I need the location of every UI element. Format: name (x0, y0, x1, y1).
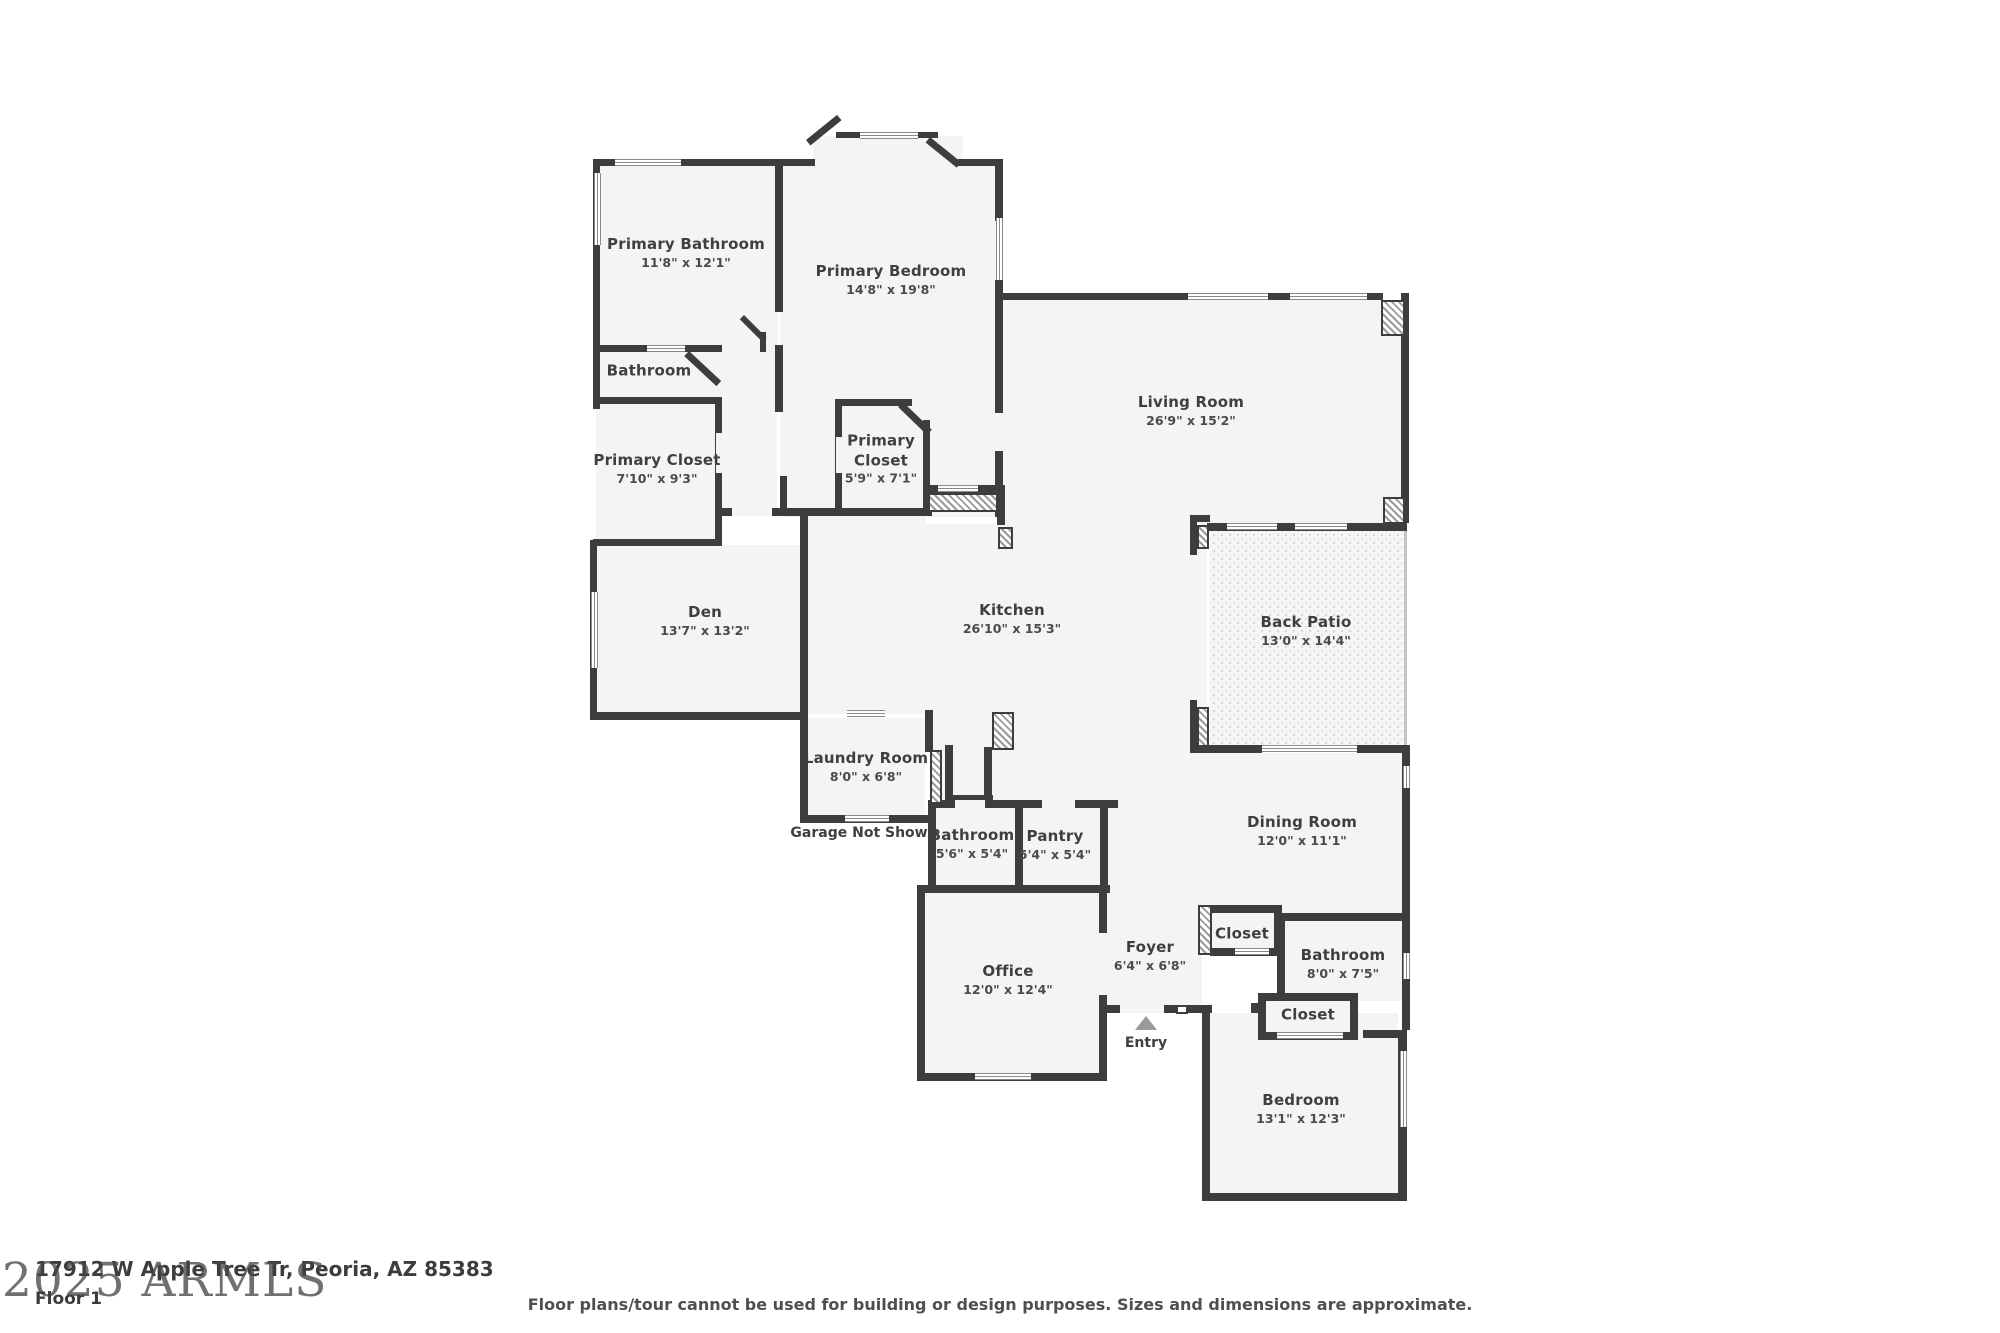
wall-segment (917, 885, 1110, 893)
door-opening (1042, 800, 1075, 808)
door-opening (1099, 933, 1107, 995)
wall-segment (593, 397, 722, 404)
wall-segment (997, 485, 1005, 525)
wall-segment (1363, 1030, 1407, 1038)
window (996, 218, 1003, 280)
wall-segment (780, 476, 787, 512)
room-label-foyer: Foyer 6'4" x 6'8" (1114, 938, 1186, 974)
room-floor (806, 516, 926, 714)
wall-segment (1190, 515, 1210, 522)
window (938, 485, 978, 492)
room-label-back-patio: Back Patio 13'0" x 14'4" (1261, 613, 1352, 649)
room-name: Living Room (1138, 393, 1244, 413)
room-name: Closet (1281, 1005, 1335, 1025)
window (647, 345, 685, 352)
wall-segment (1258, 993, 1358, 1001)
hatched-pillar (1198, 905, 1212, 955)
room-label-primary-bathroom: Primary Bathroom 11'8" x 12'1" (607, 235, 765, 271)
wall-segment (984, 747, 992, 803)
wall-segment (775, 345, 783, 412)
door-opening (955, 800, 985, 808)
wall-segment (1367, 293, 1383, 300)
room-label-primary-closet-left: Primary Closet 7'10" x 9'3" (593, 451, 720, 487)
room-label-closet-lower: Closet (1281, 1005, 1335, 1025)
window (1403, 766, 1410, 788)
room-name: Bathroom (607, 361, 692, 381)
window (1227, 523, 1277, 530)
window (1235, 948, 1269, 955)
wall-segment (1100, 800, 1108, 892)
door-opening (732, 508, 772, 516)
room-name: Back Patio (1261, 613, 1352, 633)
room-label-primary-bedroom: Primary Bedroom 14'8" x 19'8" (816, 262, 967, 298)
wall-segment (775, 159, 783, 312)
wall-segment (1202, 1193, 1407, 1201)
room-name: Office (963, 962, 1053, 982)
patio-screen-wall (1404, 531, 1407, 746)
wall-segment (917, 885, 925, 1081)
floor-label: Floor 1 (35, 1289, 102, 1309)
floor-plan-canvas: Primary Bathroom 11'8" x 12'1" Primary B… (0, 0, 2000, 1333)
room-label-primary-closet-right: Primary Closet 5'9" x 7'1" (837, 431, 925, 486)
entry-arrow-icon (1135, 1016, 1157, 1030)
room-name: Closet (1215, 924, 1269, 944)
room-label-pantry: Pantry 5'4" x 5'4" (1019, 827, 1091, 863)
window (1290, 293, 1367, 300)
room-dims: 11'8" x 12'1" (607, 255, 765, 271)
wall-segment (1210, 905, 1282, 913)
window (845, 815, 889, 822)
hatched-pillar (1381, 300, 1405, 336)
room-label-living-room: Living Room 26'9" x 15'2" (1138, 393, 1244, 429)
room-label-laundry-room: Laundry Room 8'0" x 6'8" (804, 749, 928, 785)
window (591, 592, 598, 668)
window (594, 173, 601, 245)
room-dims: 12'0" x 12'4" (963, 982, 1053, 998)
wall-segment (1277, 913, 1285, 1001)
room-dims: 14'8" x 19'8" (816, 282, 967, 298)
room-name: Primary Closet (593, 451, 720, 471)
window (1262, 745, 1357, 752)
room-dims: 5'4" x 5'4" (1019, 847, 1091, 863)
wall-segment (783, 159, 815, 166)
room-name: Primary Bathroom (607, 235, 765, 255)
wall-segment (590, 712, 805, 720)
room-name: Bathroom (1301, 946, 1386, 966)
window (1188, 293, 1268, 300)
room-dims: 5'9" x 7'1" (837, 470, 925, 486)
wall-segment (593, 539, 722, 546)
wall-segment (1285, 913, 1405, 921)
room-dims: 8'0" x 7'5" (1301, 966, 1386, 982)
room-label-bedroom: Bedroom 13'1" x 12'3" (1256, 1091, 1346, 1127)
room-dims: 26'9" x 15'2" (1138, 413, 1244, 429)
room-name: Pantry (1019, 827, 1091, 847)
hatched-pillar (1197, 707, 1209, 747)
door-opening (1120, 1005, 1164, 1013)
room-label-kitchen: Kitchen 26'10" x 15'3" (963, 601, 1061, 637)
room-label-bathroom-right: Bathroom 8'0" x 7'5" (1301, 946, 1386, 982)
hatched-pillar (930, 750, 942, 804)
entry-label: Entry (1125, 1035, 1167, 1051)
hatched-pillar (998, 527, 1013, 549)
room-name: Bathroom (930, 826, 1015, 846)
wall-segment (925, 710, 933, 752)
room-dims: 13'1" x 12'3" (1256, 1111, 1346, 1127)
room-dims: 26'10" x 15'3" (963, 621, 1061, 637)
room-floor (933, 710, 1207, 802)
room-name: Kitchen (963, 601, 1061, 621)
door-swing-marker (1176, 1005, 1188, 1014)
room-dims: 13'0" x 14'4" (1261, 633, 1352, 649)
hatched-pillar (928, 493, 998, 512)
room-label-dining-room: Dining Room 12'0" x 11'1" (1247, 813, 1357, 849)
window (1277, 1032, 1343, 1039)
room-label-closet-foyer: Closet (1215, 924, 1269, 944)
window (975, 1073, 1031, 1080)
room-label-office: Office 12'0" x 12'4" (963, 962, 1053, 998)
room-label-den: Den 13'7" x 13'2" (660, 603, 750, 639)
window (1295, 523, 1347, 530)
window (847, 710, 885, 717)
wall-segment (995, 159, 1003, 221)
room-label-bathroom-small: Bathroom 5'6" x 5'4" (930, 826, 1015, 862)
room-floor (720, 312, 777, 510)
room-name: Laundry Room (804, 749, 928, 769)
room-dims: 6'4" x 6'8" (1114, 958, 1186, 974)
room-dims: 8'0" x 6'8" (804, 769, 928, 785)
wall-segment (1099, 893, 1107, 933)
room-dims: 7'10" x 9'3" (593, 471, 720, 487)
door-opening (995, 413, 1003, 451)
room-name: Bedroom (1256, 1091, 1346, 1111)
window (1403, 953, 1410, 979)
hatched-pillar (992, 712, 1014, 750)
hatched-pillar (1383, 497, 1405, 524)
hatched-pillar (1197, 525, 1209, 549)
window (1400, 1051, 1407, 1127)
window (860, 132, 918, 139)
room-name: Den (660, 603, 750, 623)
wall-segment (995, 280, 1003, 413)
room-dims: 12'0" x 11'1" (1247, 833, 1357, 849)
wall-segment (1003, 293, 1188, 300)
garage-note: Garage Not Shown (790, 825, 937, 841)
room-label-bathroom-upper: Bathroom (607, 361, 692, 381)
window (615, 159, 681, 166)
room-dims: 5'6" x 5'4" (930, 846, 1015, 862)
room-name: Foyer (1114, 938, 1186, 958)
wall-segment (1268, 293, 1290, 300)
wall-segment (1207, 745, 1262, 753)
room-name: Primary Bedroom (816, 262, 967, 282)
room-name: Primary Closet (837, 431, 925, 470)
wall-segment (1251, 1003, 1258, 1013)
wall-segment (1202, 1005, 1210, 1201)
room-dims: 13'7" x 13'2" (660, 623, 750, 639)
room-name: Dining Room (1247, 813, 1357, 833)
